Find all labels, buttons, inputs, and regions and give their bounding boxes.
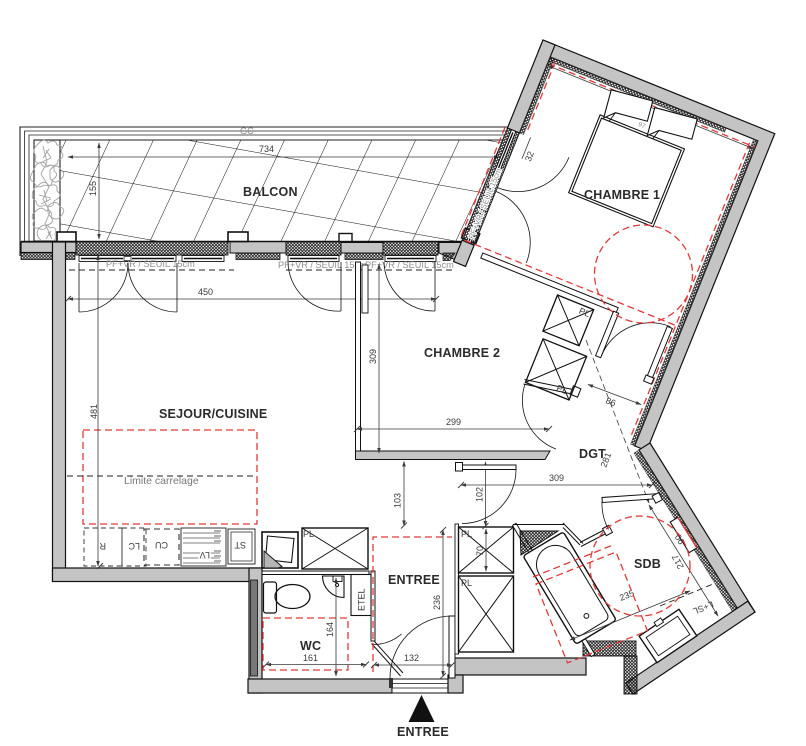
svg-text:236: 236	[432, 595, 442, 610]
svg-text:PF+VR / SEUIL 15cm: PF+VR / SEUIL 15cm	[365, 260, 454, 270]
svg-text:LV: LV	[200, 550, 210, 560]
svg-text:PL: PL	[303, 529, 314, 539]
svg-text:450: 450	[198, 287, 213, 297]
svg-text:309: 309	[549, 473, 564, 483]
svg-text:BALCON: BALCON	[243, 185, 298, 199]
svg-text:SEJOUR/CUISINE: SEJOUR/CUISINE	[159, 407, 267, 421]
svg-text:97: 97	[637, 121, 647, 130]
svg-text:155: 155	[88, 181, 98, 196]
svg-text:217: 217	[670, 553, 686, 571]
svg-text:Limite carrelage: Limite carrelage	[124, 475, 199, 487]
svg-text:SDB: SDB	[634, 557, 661, 571]
svg-text:GC: GC	[240, 126, 254, 136]
svg-text:ST: ST	[234, 540, 246, 550]
svg-text:102: 102	[475, 487, 485, 502]
svg-text:ENTREE: ENTREE	[388, 573, 440, 587]
svg-text:164: 164	[325, 622, 335, 637]
svg-text:132: 132	[404, 653, 419, 663]
svg-text:734: 734	[259, 144, 274, 154]
svg-text:L+SL: L+SL	[692, 599, 715, 616]
svg-text:PL: PL	[461, 529, 472, 539]
svg-text:161: 161	[303, 653, 318, 663]
svg-text:CU: CU	[155, 540, 168, 550]
svg-text:CHAMBRE 2: CHAMBRE 2	[424, 346, 500, 360]
svg-text:PF+VR / SEUIL 15cm: PF+VR / SEUIL 15cm	[106, 259, 195, 269]
svg-text:103: 103	[393, 493, 403, 508]
svg-text:86: 86	[604, 395, 617, 408]
svg-text:ETEL: ETEL	[357, 588, 367, 611]
svg-text:70: 70	[475, 546, 485, 556]
svg-text:481: 481	[89, 404, 99, 419]
svg-text:32: 32	[523, 150, 536, 163]
svg-text:PF+VR / SEUIL 15cm: PF+VR / SEUIL 15cm	[278, 260, 367, 270]
svg-text:309: 309	[368, 349, 378, 364]
svg-text:CHAMBRE 1: CHAMBRE 1	[584, 188, 660, 202]
svg-text:WC: WC	[300, 639, 321, 653]
svg-text:PL: PL	[461, 578, 472, 588]
svg-text:R: R	[99, 541, 106, 551]
svg-text:ENTREE: ENTREE	[397, 725, 449, 739]
svg-text:LC: LC	[128, 541, 140, 551]
svg-text:299: 299	[446, 417, 461, 427]
